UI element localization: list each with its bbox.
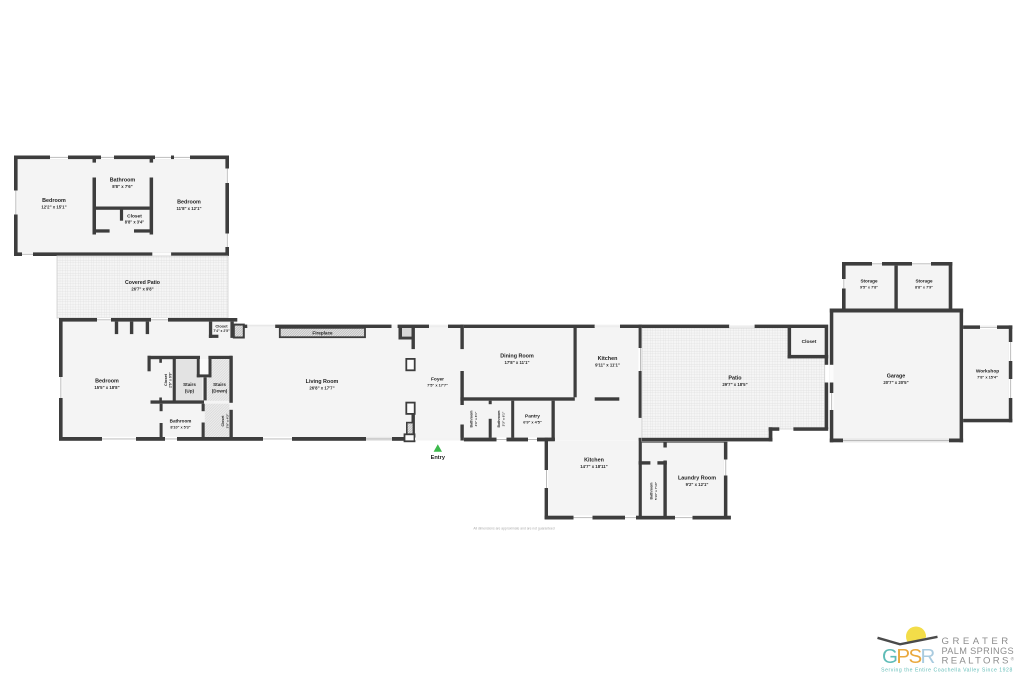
svg-text:Bathroom: Bathroom (470, 411, 474, 428)
svg-text:Closet: Closet (163, 373, 168, 386)
svg-text:20'7" x 20'5": 20'7" x 20'5" (883, 380, 908, 385)
svg-text:15'5" x 18'8": 15'5" x 18'8" (94, 385, 119, 390)
svg-text:Bathroom: Bathroom (497, 411, 501, 428)
svg-text:Covered Patio: Covered Patio (125, 280, 160, 286)
svg-text:Dining Room: Dining Room (500, 354, 534, 360)
svg-text:Serving the Entire Coachella V: Serving the Entire Coachella Valley Sinc… (881, 668, 1013, 674)
svg-text:Closet: Closet (221, 415, 225, 427)
svg-text:3'3" x 6'1": 3'3" x 6'1" (501, 411, 505, 426)
svg-text:All dimensions are approximate: All dimensions are approximate and are n… (473, 527, 554, 531)
svg-text:11'8" x 12'1": 11'8" x 12'1" (177, 206, 202, 211)
svg-text:29'7" x 18'5": 29'7" x 18'5" (722, 382, 747, 387)
svg-text:8'8" x 7'6": 8'8" x 7'6" (112, 184, 132, 189)
svg-text:26'8" x 17'7": 26'8" x 17'7" (309, 386, 334, 391)
svg-text:Stairs: Stairs (213, 382, 226, 387)
svg-text:Bedroom: Bedroom (177, 200, 201, 206)
svg-text:Closet: Closet (215, 323, 228, 328)
svg-text:14'7" x 18'11": 14'7" x 18'11" (580, 464, 607, 469)
svg-text:26'7" x 9'8": 26'7" x 9'8" (131, 287, 153, 292)
svg-text:REALTORS®: REALTORS® (942, 656, 1017, 667)
svg-text:PALM SPRINGS: PALM SPRINGS (942, 646, 1014, 656)
svg-text:7'4" x 2'5": 7'4" x 2'5" (213, 329, 230, 333)
svg-text:Storage: Storage (915, 279, 933, 284)
svg-text:Fireplace: Fireplace (312, 330, 333, 335)
svg-text:GPSR: GPSR (882, 645, 935, 668)
svg-text:2'6" x 6'9": 2'6" x 6'9" (168, 372, 172, 388)
svg-text:5'10" x 7'10": 5'10" x 7'10" (654, 481, 658, 500)
svg-text:Garage: Garage (887, 374, 906, 380)
svg-text:9'11" x 11'1": 9'11" x 11'1" (595, 363, 620, 368)
svg-text:Entry: Entry (431, 455, 446, 461)
svg-text:12'2" x 15'1": 12'2" x 15'1" (41, 205, 66, 210)
svg-text:9'2" x 12'1": 9'2" x 12'1" (686, 482, 709, 487)
svg-text:Patio: Patio (728, 376, 742, 382)
svg-text:(Up): (Up) (185, 389, 195, 394)
svg-text:8'10" x 5'3": 8'10" x 5'3" (170, 426, 190, 430)
svg-text:Living Room: Living Room (306, 379, 339, 385)
svg-text:3'9" x 4'3": 3'9" x 4'3" (225, 413, 229, 428)
svg-text:Bathroom: Bathroom (650, 483, 654, 500)
svg-text:Laundry Room: Laundry Room (678, 476, 716, 482)
svg-text:7'5" x 17'7": 7'5" x 17'7" (427, 383, 448, 388)
svg-text:Bathroom: Bathroom (170, 419, 192, 424)
svg-text:Kitchen: Kitchen (584, 458, 604, 464)
svg-text:6'9" x 4'5": 6'9" x 4'5" (523, 420, 542, 425)
svg-text:Kitchen: Kitchen (598, 356, 618, 362)
svg-text:(Down): (Down) (212, 389, 228, 394)
svg-text:Closet: Closet (802, 339, 817, 345)
svg-text:17'8" x 11'1": 17'8" x 11'1" (505, 360, 530, 365)
svg-text:Bedroom: Bedroom (95, 379, 119, 385)
svg-text:Stairs: Stairs (183, 382, 196, 387)
svg-text:8'8" x 7'9": 8'8" x 7'9" (915, 286, 933, 290)
svg-text:7'8" x 15'4": 7'8" x 15'4" (977, 375, 998, 380)
svg-text:8'8" x 3'4": 8'8" x 3'4" (125, 220, 145, 225)
svg-text:Bathroom: Bathroom (110, 178, 136, 184)
svg-text:Storage: Storage (860, 279, 878, 284)
svg-text:9'5" x 7'8": 9'5" x 7'8" (860, 286, 878, 290)
svg-text:Bedroom: Bedroom (42, 198, 66, 204)
svg-text:4'6" x 6'1": 4'6" x 6'1" (474, 411, 478, 426)
